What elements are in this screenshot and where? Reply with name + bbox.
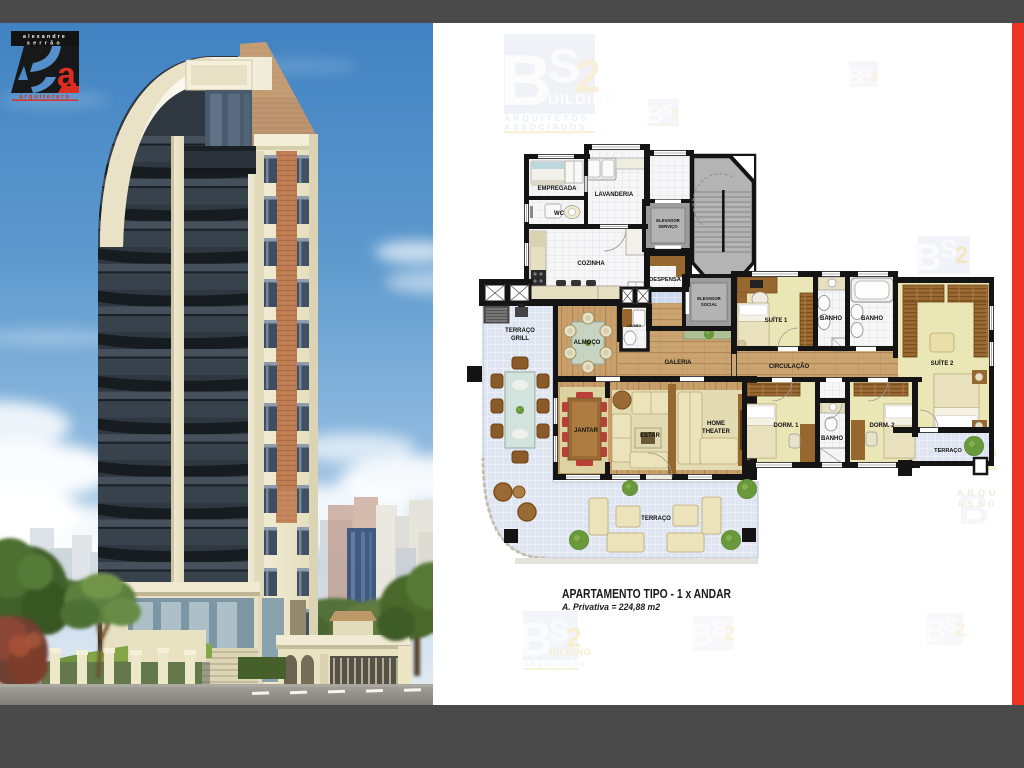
svg-text:DESPENSA: DESPENSA [649,277,682,283]
svg-text:TERRAÇO: TERRAÇO [934,448,962,454]
svg-text:BANHO: BANHO [821,436,843,442]
svg-text:B: B [847,64,863,89]
svg-text:UILDING: UILDING [549,647,592,658]
svg-text:UILDING: UILDING [548,91,617,108]
svg-text:ALMOÇO: ALMOÇO [574,340,601,346]
svg-text:TERRAÇO: TERRAÇO [641,516,671,522]
svg-text:LAVABO: LAVABO [627,324,642,328]
svg-text:ASSOCIADOS: ASSOCIADOS [504,122,587,132]
svg-text:ARQU: ARQU [957,488,1000,498]
svg-text:CIRCULAÇÃO: CIRCULAÇÃO [769,363,810,370]
svg-text:B: B [500,41,552,121]
svg-text:SERVIÇO: SERVIÇO [658,224,678,229]
svg-text:2: 2 [955,620,966,641]
svg-text:ASSO: ASSO [957,499,999,509]
svg-text:B: B [690,617,713,653]
svg-text:B: B [914,237,941,279]
svg-text:EMPREGADA: EMPREGADA [537,186,577,192]
svg-text:BANHO: BANHO [861,316,883,322]
svg-text:2: 2 [724,623,735,645]
svg-text:B: B [519,613,552,665]
svg-text:LAVANDERIA: LAVANDERIA [595,192,634,198]
svg-text:HOME: HOME [707,421,725,427]
svg-text:GRILL: GRILL [511,336,529,342]
svg-text:ELEVADOR: ELEVADOR [656,218,680,223]
svg-text:2: 2 [870,68,878,84]
svg-text:ELEVADOR: ELEVADOR [697,296,721,301]
svg-text:SUÍTE 1: SUÍTE 1 [765,316,788,324]
svg-text:A. Privativa = 224,88 m2: A. Privativa = 224,88 m2 [561,602,661,612]
svg-text:ESTAR: ESTAR [640,433,661,439]
svg-text:WC: WC [554,211,565,217]
svg-text:GALERIA: GALERIA [665,360,693,366]
svg-text:COZINHA: COZINHA [577,261,605,267]
svg-text:THEATER: THEATER [702,429,731,435]
svg-text:2: 2 [671,106,679,123]
svg-text:ARQUITETOS: ARQUITETOS [524,661,587,668]
svg-text:alexandre: alexandre [23,34,67,40]
svg-text:BANHO: BANHO [820,316,842,322]
svg-text:serrão: serrão [27,41,63,47]
svg-text:DORM. 1: DORM. 1 [773,423,799,429]
svg-text:SOCIAL: SOCIAL [701,302,718,307]
svg-text:2: 2 [955,242,968,269]
svg-text:TERRAÇO: TERRAÇO [505,328,535,334]
svg-text:DORM. 2: DORM. 2 [869,423,895,429]
svg-text:APARTAMENTO TIPO - 1 x ANDAR: APARTAMENTO TIPO - 1 x ANDAR [562,586,731,601]
svg-text:B: B [924,615,946,648]
svg-text:JANTAR: JANTAR [574,428,599,434]
svg-text:SUÍTE 2: SUÍTE 2 [931,359,954,367]
